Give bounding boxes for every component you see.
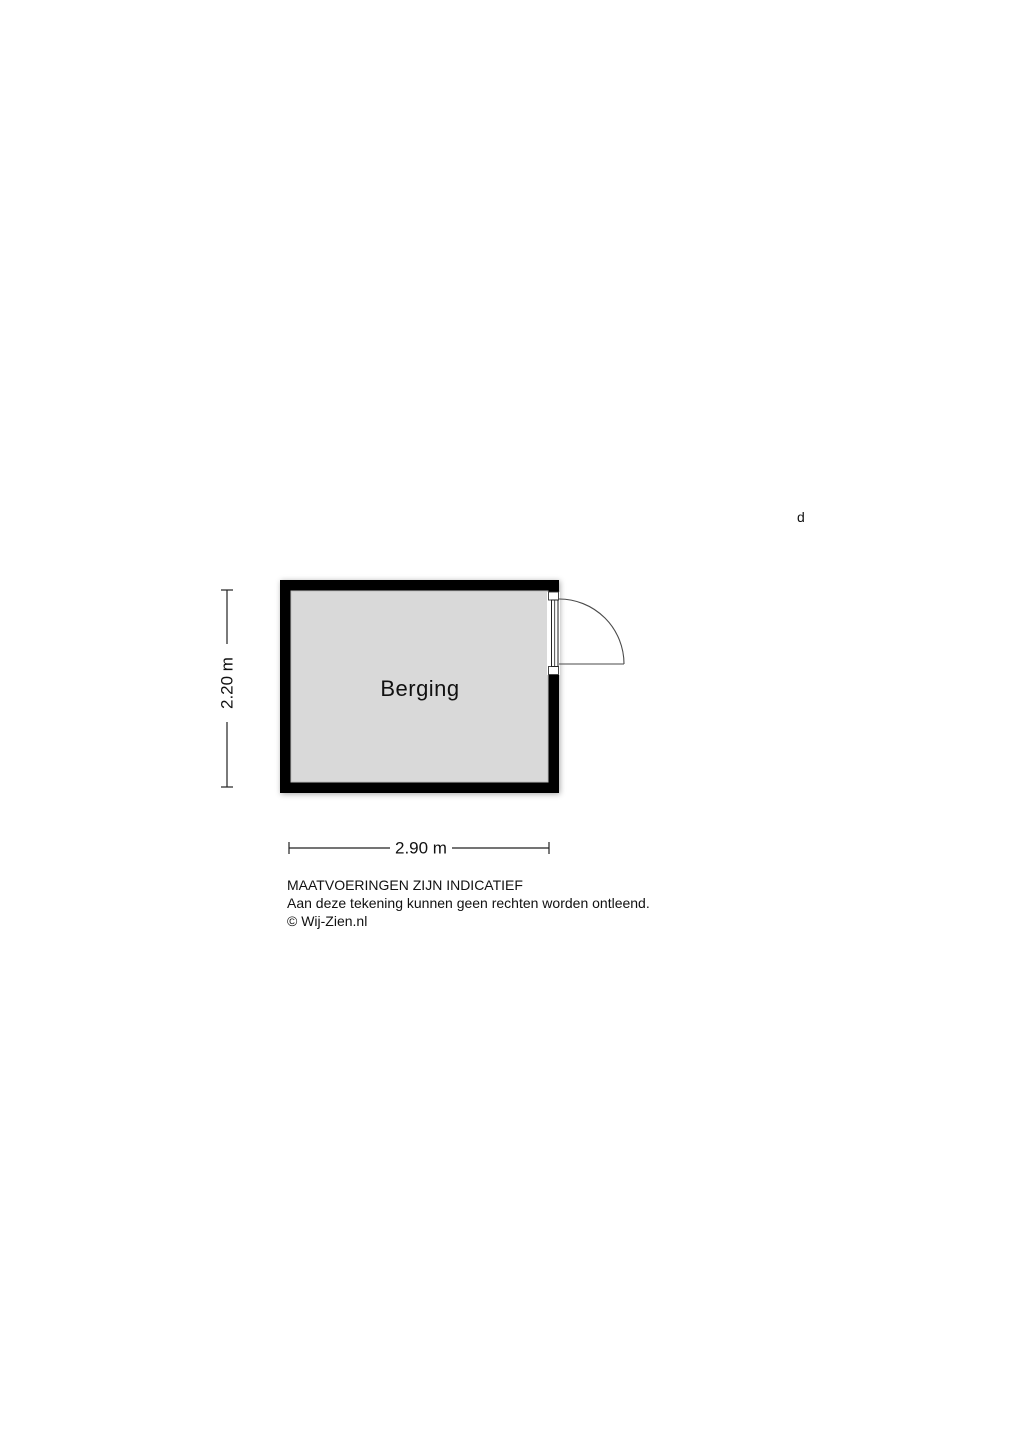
disclaimer-block: MAATVOERINGEN ZIJN INDICATIEF Aan deze t… xyxy=(287,877,650,929)
floorplan-drawing: 2.20 m 2.90 m Berging d MAATVOERINGEN ZI… xyxy=(0,0,1019,1440)
disclaimer-line-2: Aan deze tekening kunnen geen rechten wo… xyxy=(287,895,650,911)
width-dimension: 2.90 m xyxy=(289,839,549,858)
door-annotation: d xyxy=(797,509,805,525)
disclaimer-line-1: MAATVOERINGEN ZIJN INDICATIEF xyxy=(287,877,523,893)
room-label: Berging xyxy=(380,676,459,701)
copyright-line: © Wij-Zien.nl xyxy=(287,913,367,929)
door-post-top xyxy=(549,592,559,600)
floorplan-page: 2.20 m 2.90 m Berging d MAATVOERINGEN ZI… xyxy=(0,0,1019,1440)
height-dimension: 2.20 m xyxy=(218,590,237,787)
height-dimension-label: 2.20 m xyxy=(218,657,237,709)
door-swing-arc xyxy=(559,599,624,664)
width-dimension-label: 2.90 m xyxy=(395,839,447,858)
door-post-bottom xyxy=(549,667,559,675)
